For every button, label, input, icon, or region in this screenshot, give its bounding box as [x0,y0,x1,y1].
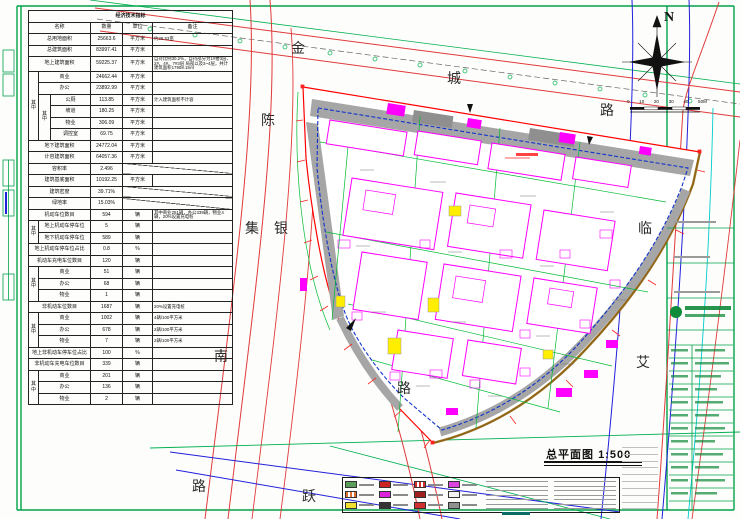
road-label-yue: 跃 [302,486,316,506]
table-row: 办公136辆 [29,382,233,394]
legend-notes [483,478,619,512]
col-header-unit: 单位 [123,22,153,34]
table-row: 其中商业51辆 [29,267,233,279]
table-row: 其中商业24662.44平方米 [29,71,233,83]
north-label: N [664,10,674,26]
table-row: 总建筑面积83997.41平方米 [29,45,233,57]
group-label: 其中 [29,221,39,244]
group-label: 其中 [29,370,39,405]
side-notes [622,447,658,509]
table-row: 物业7辆2辆/100平方米 [29,336,233,348]
col-header-name: 名称 [29,22,91,34]
table-row: 机动车位数目594辆其中商业251辆，办公339辆，物业4辆，20%设置充电桩 [29,209,233,221]
table-row: 地下建筑面积24772.04平方米 [29,140,233,152]
economic-indicators-table: 经济技术指标 名称 数量 单位 备注 总用地面积25663.6平方米约38.53… [28,10,232,447]
road-label-chen: 陈 [261,110,275,130]
legend-swatch [345,502,357,509]
table-row: 建筑密度39.71% [29,186,233,198]
table-row: 计容建筑面积64057.36平方米 [29,152,233,164]
legend-box [342,477,620,513]
legend-swatch [448,502,460,509]
legend-swatch [414,502,426,509]
group-label: 其中 [29,313,39,348]
table-title: 经济技术指标 [29,11,233,23]
road-label-lin: 临 [638,218,652,238]
table-row: 办公23892.99平方米 [29,83,233,95]
table-row: 坡道180.25平方米 [29,106,233,118]
legend-swatch [345,491,357,498]
caption-title: 总平面图 [546,449,594,461]
drawing-caption: 总平面图 1:500 [546,446,631,462]
table-row: 办公678辆2辆/100平方米 [29,324,233,336]
table-row: 其中商业1002辆4辆/100平方米 [29,313,233,325]
table-row: 调控室69.75平方米 [29,129,233,141]
table-row: 总用地面积25663.6平方米约38.53亩 [29,34,233,46]
legend-swatch [414,491,426,498]
table-row: 非机动车位数目1687辆20%设置充电桩 [29,301,233,313]
road-label-ji: 集 [245,218,259,238]
table-row: 非机动车充电车位数目339辆 [29,359,233,371]
table-row: 地上非机动车停车位占比100% [29,347,233,359]
legend-swatch [345,481,357,488]
legend-swatch [448,481,460,488]
col-header-remark: 备注 [153,22,233,34]
legend-swatch [379,491,391,498]
road-label-jin: 金 [291,38,305,58]
road-label-lu-sw: 路 [192,476,206,496]
drawing-sheet: 经济技术指标 名称 数量 单位 备注 总用地面积25663.6平方米约38.53… [0,0,740,519]
table-row: 办公68辆 [29,278,233,290]
legend-swatch [379,502,391,509]
road-label-ai: 艾 [636,352,650,372]
table-row: 其中商业201辆 [29,370,233,382]
road-label-cheng: 城 [447,68,461,88]
legend-swatch [414,481,426,488]
road-label-lu-top: 路 [600,100,614,120]
table-row: 容积率2.496 [29,163,233,175]
table-row: 建筑基底面积10192.25平方米 [29,175,233,187]
bottom-stamp [502,512,530,515]
road-label-yin: 银 [274,218,288,238]
legend-swatch [379,481,391,488]
table-row: 绿地率15.03% [29,198,233,210]
road-label-nan: 南 [214,346,228,366]
table-row: 地下机动车停车位589辆 [29,232,233,244]
binding-strip [3,50,14,300]
group-label: 其中 [29,71,39,140]
scale-bar [630,107,700,112]
group-label: 其中 [39,94,51,140]
col-header-qty: 数量 [91,22,123,34]
table-row: 机动车充电车位数目120辆 [29,255,233,267]
legend-swatches [343,478,483,512]
table-row: 物业306.09平方米 [29,117,233,129]
design-firm-logo [670,306,731,318]
table-row: 地上机动车停车位占比0.8% [29,244,233,256]
road-label-lu-se: 路 [397,378,411,398]
site-parcel [296,85,705,448]
legend-swatch [448,491,460,498]
title-block-fields [674,221,720,293]
table-row: 物业1辆 [29,290,233,302]
north-arrow-icon [653,16,661,27]
table-row: 其中地上机动车停车位5辆 [29,221,233,233]
table-row: 物业2辆 [29,393,233,405]
group-label: 其中 [29,267,39,302]
table-row: 地上建筑面积59225.37平方米自持比例30.2%，自持部分为1#楼3层、2#… [29,57,233,72]
scale-bar-labels: 010 2030 4050M [627,99,707,104]
table-row: 其中公厕113.85平方米计入建筑面积不计容 [29,94,233,106]
